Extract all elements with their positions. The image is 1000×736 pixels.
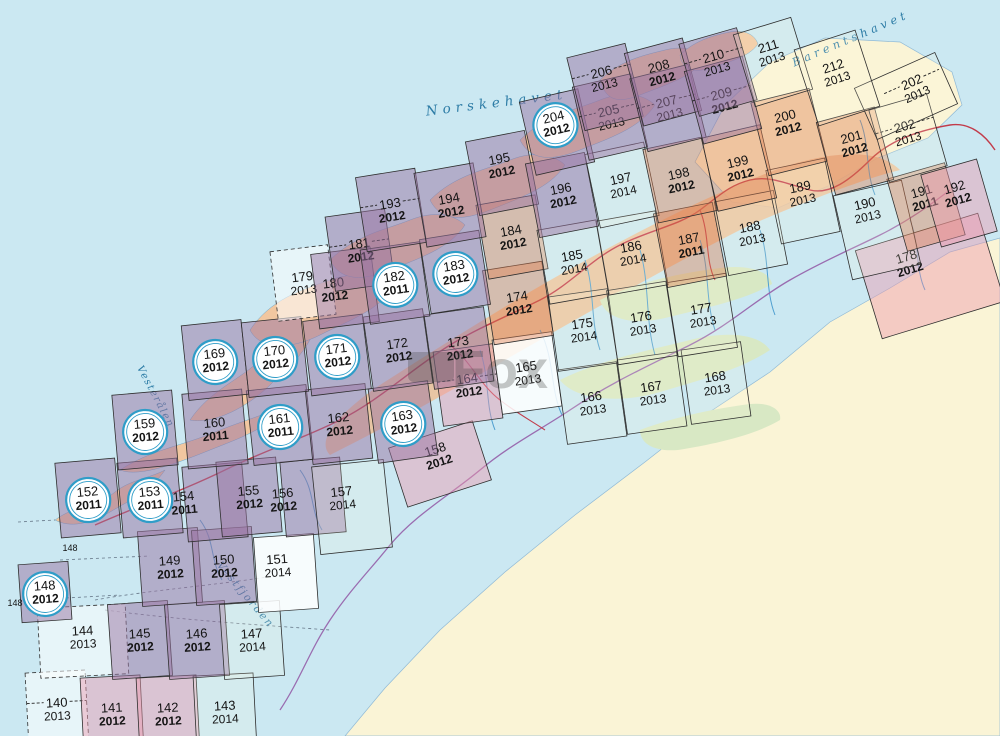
sheet-year: 2012 (127, 639, 155, 655)
sheet-label-142: 1422012 (154, 699, 182, 728)
extra-sheet-ref-148-0: 148 (62, 543, 77, 553)
sheet-year: 2014 (264, 565, 292, 581)
sheet-year: 2012 (132, 429, 160, 445)
map-sheet-160: 1602011 (182, 389, 248, 469)
map-sheet-166: 1662013 (557, 362, 627, 445)
sheet-label-143: 1432014 (211, 697, 239, 726)
sheet-year: 2012 (155, 713, 183, 728)
sheet-year: 2013 (69, 636, 97, 651)
map-sheet-163: 1632012 (368, 381, 438, 464)
sheet-label-141: 1412012 (98, 699, 126, 728)
map-sheet-182: 1822011 (360, 242, 430, 325)
map-sheet-148: 1482012 (18, 561, 72, 622)
map-sheet-142: 1422012 (136, 675, 200, 736)
sheet-year: 2012 (236, 496, 264, 512)
sheet-year: 2013 (44, 708, 72, 723)
map-sheet-157: 1572014 (312, 459, 393, 554)
map-sheet-170: 1702012 (241, 317, 309, 398)
sheet-index-map: NorskehavetBarentshavetVestfjordenVester… (0, 0, 1000, 736)
map-sheet-143: 1432014 (193, 673, 257, 736)
sheet-year: 2012 (184, 639, 212, 655)
sheet-year: 2011 (171, 502, 198, 518)
sheet-year: 2012 (326, 423, 354, 440)
sheet-year: 2011 (267, 424, 295, 441)
sheet-year: 2011 (137, 497, 164, 513)
map-sheet-152: 1522011 (55, 458, 121, 538)
sheet-year: 2012 (99, 713, 127, 728)
extra-sheet-ref-148-1: 148 (7, 598, 22, 608)
sheet-year: 2012 (262, 356, 290, 373)
watermark: Fox (452, 340, 548, 400)
map-sheet-145: 1452012 (107, 600, 172, 679)
map-sheet-141: 1412012 (80, 675, 144, 736)
sheet-label-144: 1442013 (69, 622, 97, 651)
map-sheet-169: 1692012 (181, 320, 249, 401)
watermark-blob (408, 352, 454, 382)
sheet-year: 2012 (157, 566, 185, 582)
sheet-year: 2012 (211, 565, 239, 581)
sheet-year: 2014 (212, 711, 240, 726)
sheet-year: 2011 (75, 497, 102, 513)
map-sheet-151: 1512014 (253, 533, 318, 612)
sheet-year: 2012 (202, 359, 230, 376)
sheet-year: 2012 (270, 498, 298, 514)
sheet-year: 2012 (32, 591, 60, 607)
sheet-year: 2011 (202, 428, 229, 444)
map-sheet-147: 1472014 (219, 600, 284, 679)
map-sheet-159: 1592012 (112, 390, 178, 470)
map-index-sheet: NorskehavetBarentshavetVestfjordenVester… (0, 0, 1000, 736)
map-sheet-140: 1402013 (25, 670, 89, 736)
map-sheet-167: 1672013 (617, 352, 687, 435)
sheet-year: 2014 (239, 639, 267, 655)
sheet-year: 2014 (329, 497, 357, 514)
